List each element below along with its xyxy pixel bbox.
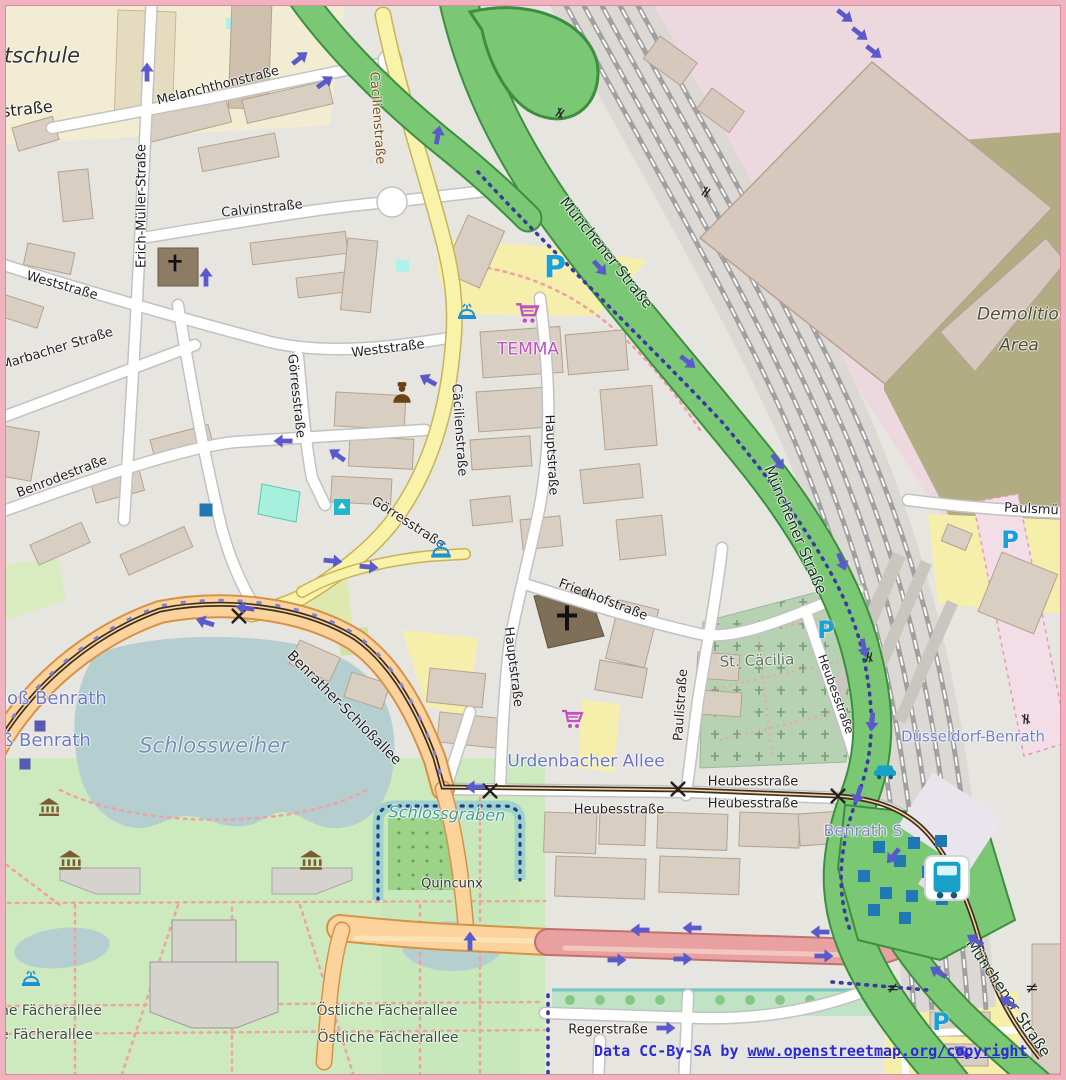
pond-small <box>396 260 409 272</box>
attribution: Data CC-By-SA by www.openstreetmap.org/c… <box>594 1042 1028 1060</box>
palace-main <box>172 920 236 964</box>
lake-schlossweiher <box>74 637 394 828</box>
palace-annex <box>150 962 278 1028</box>
map-canvas[interactable] <box>0 0 1066 1080</box>
church-building <box>158 248 198 286</box>
pedestrian-area <box>578 700 620 772</box>
attribution-text: Data CC-By-SA by <box>594 1042 748 1060</box>
road-circle <box>377 187 407 217</box>
map-viewport[interactable]: tschulestraßeMelanchthonstraßeErich-Müll… <box>0 0 1066 1080</box>
attribution-link[interactable]: www.openstreetmap.org/copyright <box>748 1042 1028 1060</box>
